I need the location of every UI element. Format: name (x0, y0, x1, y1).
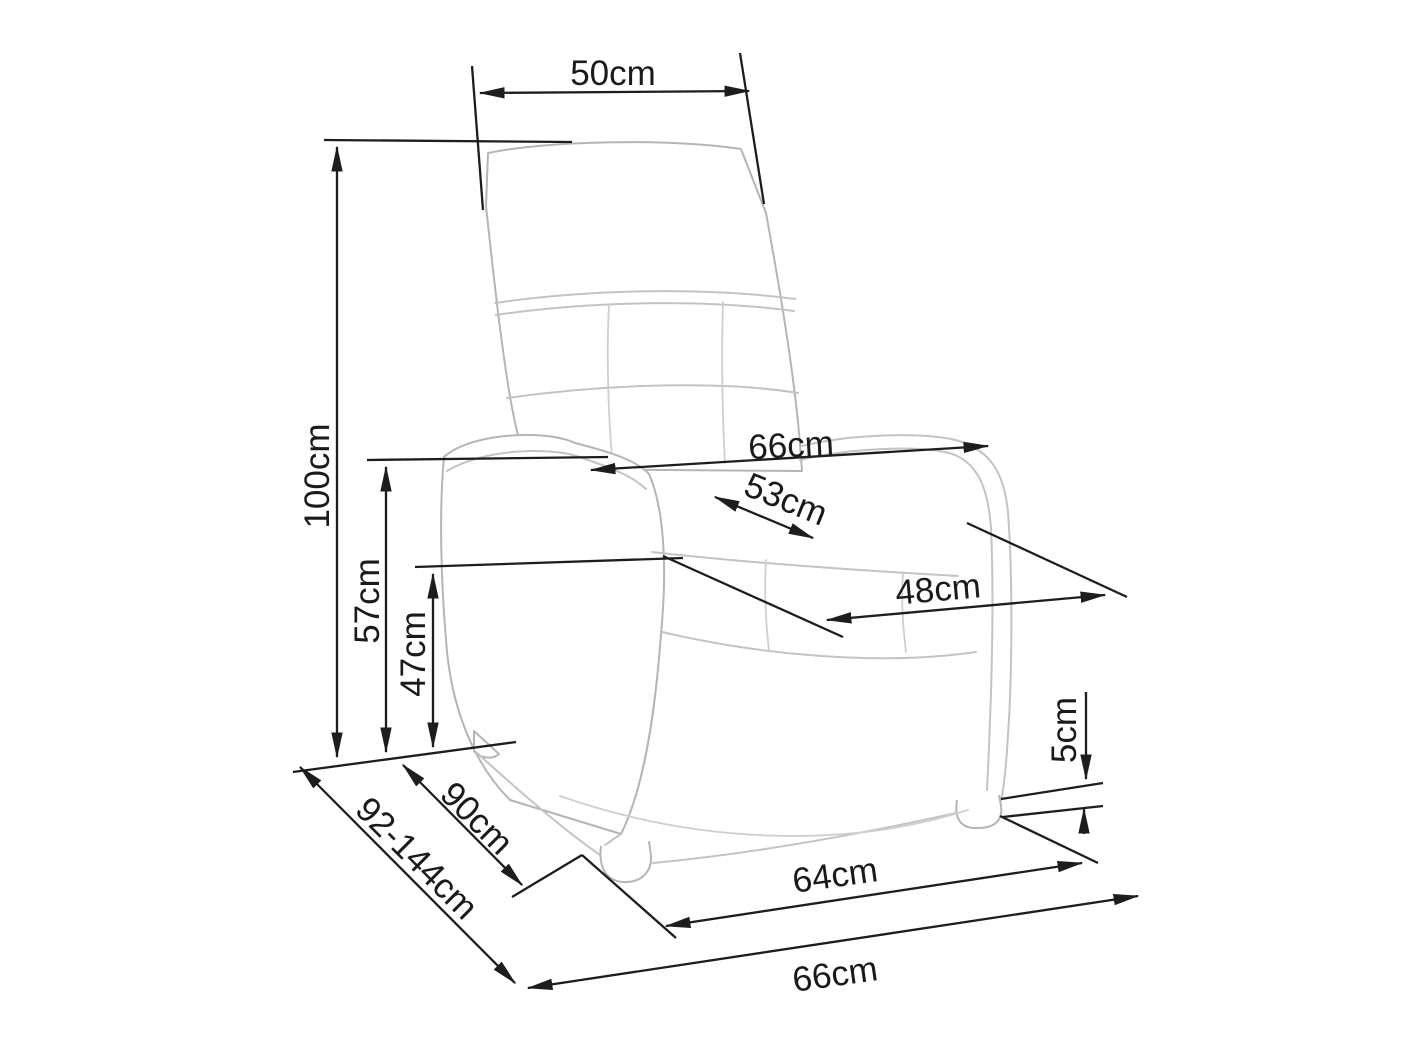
dimension-seat-depth: 48cm (663, 523, 1127, 637)
chair-front-foot (600, 841, 651, 882)
dim-label-overall-width: 66cm (790, 949, 880, 1000)
dim-label-headrest-width: 50cm (570, 54, 656, 93)
chair-right-armrest-outer (802, 435, 1011, 800)
dim-label-armrest-span-width: 66cm (747, 424, 835, 467)
extension-lines (1001, 783, 1103, 817)
dim-label-overall-height: 100cm (298, 423, 337, 528)
dim-label-front-feet-span: 64cm (790, 850, 880, 901)
chair-left-armrest (441, 435, 664, 834)
dim-label-armrest-height: 57cm (348, 558, 387, 644)
dimension-seat-width: 53cm (715, 465, 833, 538)
diagram-canvas: 50cm 100cm 57cm 47cm 66cm 53cm (0, 0, 1403, 1052)
base-front-edge (653, 813, 956, 863)
seat-front-seam (662, 632, 976, 658)
dimension-overall-width: 66cm (528, 896, 1138, 1000)
chair-sketch (441, 142, 1011, 882)
furniture-dimension-diagram: 50cm 100cm 57cm 47cm 66cm 53cm (0, 0, 1403, 1052)
seat-tuft-seams (765, 560, 906, 652)
dim-label-seat-width: 53cm (739, 465, 833, 533)
dim-label-foot-height: 5cm (1045, 697, 1084, 763)
dimension-foot-height: 5cm (1001, 692, 1103, 834)
dim-label-seat-height: 47cm (394, 611, 433, 697)
dim-label-seat-depth: 48cm (894, 566, 983, 612)
extension-lines (324, 140, 572, 142)
extension-lines (512, 855, 582, 897)
